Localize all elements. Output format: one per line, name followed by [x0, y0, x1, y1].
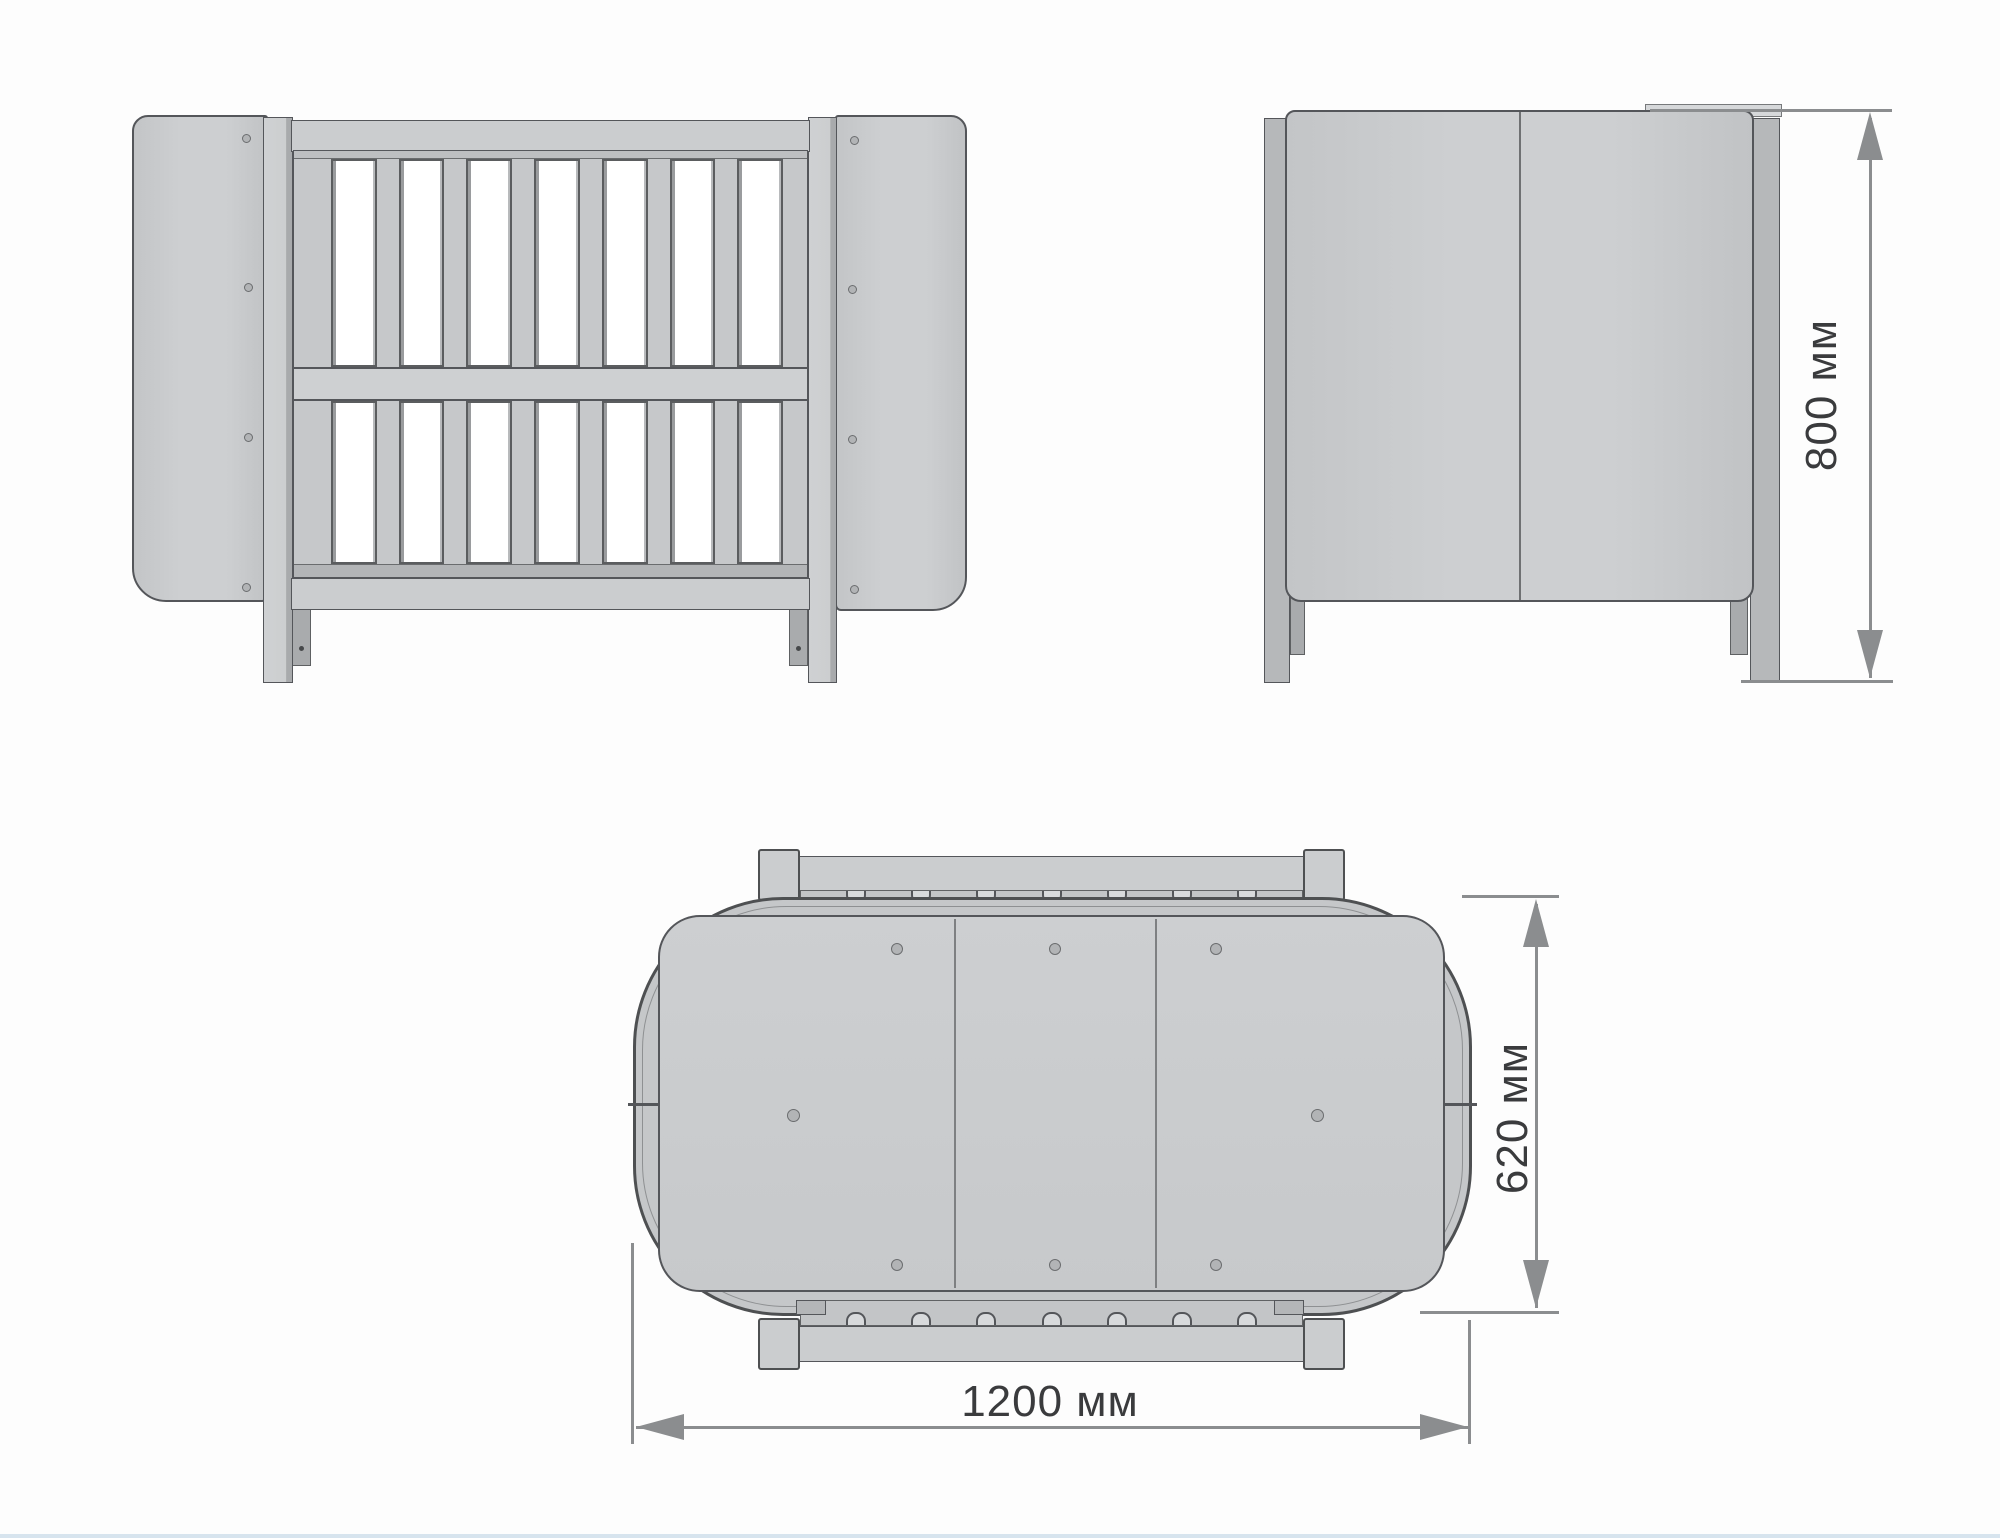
- slat-notch: [846, 1312, 866, 1325]
- screw-hole: [1049, 943, 1061, 955]
- slat-window: [534, 159, 580, 367]
- crib-slat-frame: [293, 150, 808, 578]
- dim-height-arrow-down: [1857, 630, 1883, 678]
- screw-hole: [850, 585, 859, 594]
- rail-post-bottom-left: [758, 1318, 800, 1370]
- slat-window: [737, 159, 783, 367]
- dim-height-label: 800 мм: [1797, 290, 1847, 500]
- slat-notch: [911, 1312, 931, 1325]
- slat-window: [737, 401, 783, 564]
- rail-post-top-left: [758, 849, 800, 901]
- bottom-rail-slat-strip: [800, 1300, 1303, 1326]
- slat-frame-top-lip: [294, 151, 807, 159]
- top-rail-bar-top: [770, 856, 1330, 892]
- screw-hole: [891, 1259, 903, 1271]
- dim-width-extension-top: [1462, 895, 1559, 898]
- screw-hole: [242, 583, 251, 592]
- slat-window: [670, 401, 716, 564]
- dim-length-label: 1200 мм: [900, 1380, 1200, 1424]
- slat-notch: [1107, 1312, 1127, 1325]
- dim-width-arrow-down: [1523, 1260, 1549, 1308]
- crib-end-panel: [1285, 110, 1754, 602]
- screw-hole: [848, 285, 857, 294]
- leg-screw-dot: [796, 646, 801, 651]
- dim-length-arrow-right: [1420, 1414, 1468, 1440]
- slat-frame-bottom-lip: [294, 564, 807, 577]
- platform-divider: [954, 919, 956, 1288]
- front-view: [0, 0, 1000, 760]
- dim-height-extension-bottom: [1741, 680, 1893, 683]
- rail-post-top-right: [1303, 849, 1345, 901]
- slat-window: [534, 401, 580, 564]
- screw-hole: [850, 136, 859, 145]
- screw-hole: [242, 134, 251, 143]
- crib-post-left: [263, 117, 293, 683]
- screw-hole: [1049, 1259, 1061, 1271]
- crib-bottom-rail: [291, 578, 810, 610]
- crib-post-right: [808, 117, 837, 683]
- crib-side-panel-left: [132, 115, 268, 602]
- crib-mid-rail: [294, 367, 807, 401]
- screw-hole: [244, 433, 253, 442]
- dim-width-extension-bottom: [1420, 1311, 1559, 1314]
- screw-hole: [1311, 1109, 1324, 1122]
- bottom-rail-bar: [770, 1326, 1330, 1362]
- image-bottom-edge: [0, 1534, 2000, 1538]
- dim-height-line: [1869, 118, 1872, 678]
- screw-hole: [787, 1109, 800, 1122]
- slat-notch: [1172, 1312, 1192, 1325]
- crib-top-rail: [291, 120, 810, 152]
- crib-side-inner-leg-left: [1290, 597, 1305, 655]
- dim-width-arrow-up: [1523, 899, 1549, 947]
- dim-length-line: [636, 1426, 1468, 1429]
- slat-window: [602, 401, 648, 564]
- rail-connector-tab: [1274, 1300, 1304, 1315]
- screw-hole: [848, 435, 857, 444]
- slat-window: [466, 159, 512, 367]
- slat-window: [399, 401, 445, 564]
- slat-window: [331, 401, 377, 564]
- slat-row-lower: [331, 401, 783, 564]
- slat-window: [466, 401, 512, 564]
- crib-side-inner-leg-right: [1730, 597, 1748, 655]
- dim-height-arrow-up: [1857, 112, 1883, 160]
- rail-connector-tab: [796, 1300, 826, 1315]
- slat-notch: [1237, 1312, 1257, 1325]
- platform-divider: [1155, 919, 1157, 1288]
- oval-joint-tick-left: [628, 1103, 662, 1106]
- slat-window: [602, 159, 648, 367]
- end-panel-center-joint: [1519, 112, 1521, 600]
- slat-window: [670, 159, 716, 367]
- technical-drawing-crib: 800 мм: [0, 0, 2000, 1538]
- crib-side-panel-right: [835, 115, 967, 611]
- slat-window: [399, 159, 445, 367]
- slat-row-upper: [331, 159, 783, 367]
- dim-length-extension-left: [631, 1243, 634, 1444]
- screw-hole: [891, 943, 903, 955]
- dim-height-extension-top: [1650, 109, 1892, 112]
- screw-hole: [1210, 943, 1222, 955]
- rail-post-bottom-right: [1303, 1318, 1345, 1370]
- side-view: [1200, 0, 1900, 760]
- dim-length-extension-right: [1468, 1320, 1471, 1444]
- dim-width-label: 620 мм: [1488, 1018, 1538, 1218]
- screw-hole: [1210, 1259, 1222, 1271]
- slat-notch: [1042, 1312, 1062, 1325]
- screw-hole: [244, 283, 253, 292]
- slat-window: [331, 159, 377, 367]
- crib-side-leg-right: [1750, 118, 1780, 683]
- top-view: [0, 760, 2000, 1480]
- oval-joint-tick-right: [1443, 1103, 1477, 1106]
- leg-screw-dot: [299, 646, 304, 651]
- slat-notch: [976, 1312, 996, 1325]
- mattress-platform: [658, 915, 1445, 1292]
- dim-length-arrow-left: [636, 1414, 684, 1440]
